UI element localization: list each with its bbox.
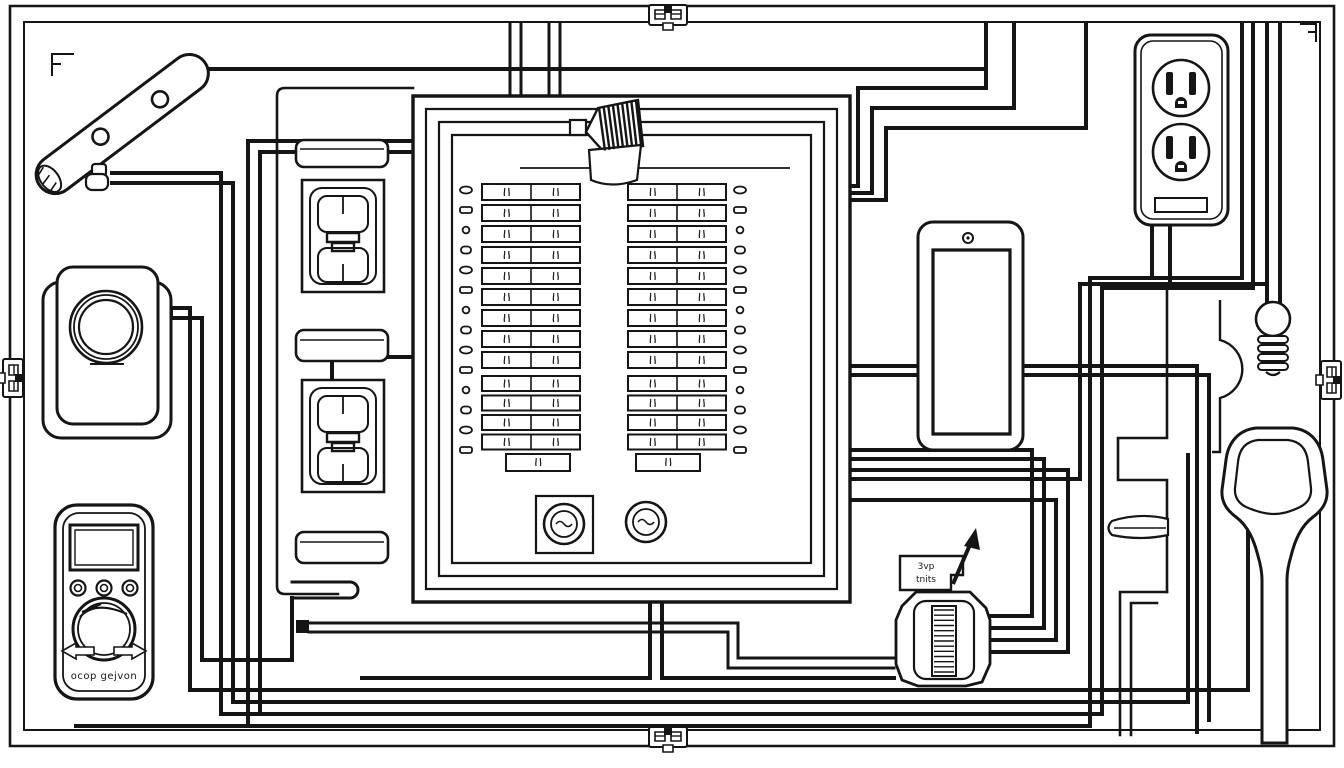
terminal-blob: [461, 327, 471, 334]
gfci-stripe-bar: [932, 606, 956, 676]
terminal-blob: [737, 387, 744, 394]
terminal-blob: [735, 327, 745, 334]
terminal-blob: [737, 227, 744, 234]
terminal-blob: [460, 427, 472, 434]
bulb-base: [1258, 336, 1288, 370]
conduit-tube: [29, 47, 216, 201]
gfci-tab-text-1: 3vp: [918, 562, 935, 572]
corner-mark-top-right: [1300, 24, 1316, 42]
bulb-base-ring: [1258, 363, 1288, 370]
breaker-row-single: [636, 454, 700, 471]
bulb-base-ring: [1258, 336, 1288, 343]
bulb-tip: [1266, 372, 1280, 375]
gfci-tab-text-2: tnits: [916, 575, 936, 585]
terminal-blob: [734, 427, 746, 434]
terminal-blob: [461, 407, 471, 414]
terminal-blob: [463, 387, 470, 394]
multimeter: ocop gejvon: [55, 505, 153, 699]
smartphone: [918, 222, 1023, 450]
gfci-device: 3vp tnits: [896, 528, 990, 686]
terminal-blob: [460, 447, 472, 453]
corner-mark-top-left: [52, 54, 74, 76]
terminal-blob: [735, 407, 745, 414]
terminal-blob: [460, 207, 472, 213]
breaker-row-single: [506, 454, 570, 471]
panel-feed-wires: [510, 23, 560, 96]
rocker-switch-2: [302, 380, 384, 492]
terminal-blob: [734, 207, 746, 213]
terminal-blob: [463, 307, 470, 314]
wire-clip-assembly: [1118, 288, 1167, 735]
blank-plate-3: [296, 532, 388, 563]
multimeter-label: ocop gejvon: [71, 671, 137, 682]
border-ornament-left: [0, 359, 23, 397]
shelf-clip-lens: [1109, 516, 1169, 538]
terminal-blob: [734, 187, 746, 194]
breaker-panel: [413, 96, 850, 602]
terminal-blob: [463, 227, 470, 234]
panel-dial-right: [626, 502, 666, 542]
terminal-blob: [734, 287, 746, 293]
light-bulb: [1256, 302, 1290, 375]
switch-column: [296, 140, 388, 563]
receptacle-top: [1153, 60, 1209, 116]
spoon-probe: [1222, 428, 1327, 743]
terminal-blob: [734, 267, 746, 274]
panel-dial-left: [536, 496, 593, 553]
terminal-blob: [734, 347, 746, 354]
wiring-diagram: ocop gejvon: [0, 0, 1344, 768]
round-timer-device: [43, 267, 171, 438]
wire-square-terminal-2: [309, 632, 894, 668]
bulb-base-ring: [1258, 345, 1288, 352]
blank-plate-1: [296, 140, 388, 167]
terminal-blob: [460, 367, 472, 373]
terminal-blob: [460, 267, 472, 274]
terminal-blob: [460, 187, 472, 194]
wire-square-terminal-1: [309, 623, 894, 658]
rocker-switch-1: [302, 180, 384, 292]
terminal-blob: [460, 287, 472, 293]
arrow-up-icon: [964, 528, 980, 550]
border-ornament-bottom: [649, 727, 687, 752]
blank-plate-2: [296, 330, 388, 361]
terminal-blob: [737, 307, 744, 314]
receptacle-bottom: [1153, 124, 1209, 180]
terminal-blob: [734, 367, 746, 373]
terminal-blob: [461, 247, 471, 254]
bulb-base-ring: [1258, 354, 1288, 361]
terminal-blob: [735, 247, 745, 254]
pipe-bulge: [1212, 300, 1242, 452]
border-ornament-top: [649, 5, 687, 30]
duplex-outlet: [1135, 35, 1228, 225]
wire-u-stub: [292, 582, 358, 598]
diagram-stage: ocop gejvon: [0, 0, 1344, 768]
clamp-skirt: [589, 145, 641, 185]
wire-panel-bottom-left: [362, 602, 650, 678]
terminal-blob: [734, 447, 746, 453]
terminal-blob: [460, 347, 472, 354]
